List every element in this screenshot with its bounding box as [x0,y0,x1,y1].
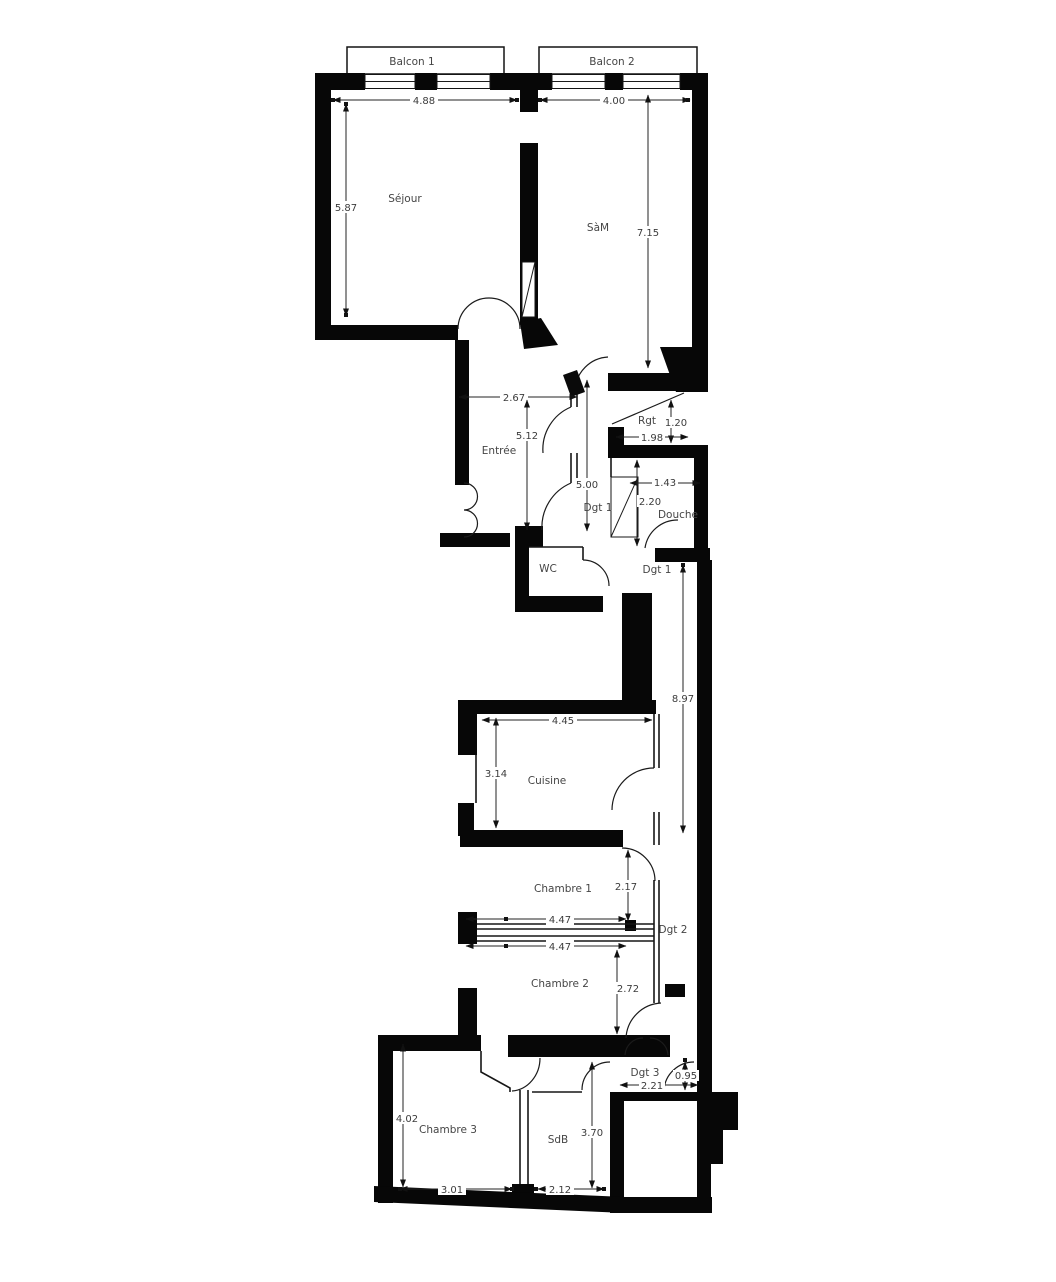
dim-entree-height: 5.12 [513,400,541,530]
fixtures [522,262,638,537]
dim-rgt-width: 1.98 [616,432,688,444]
room-label-dgt1-lower: Dgt 1 [643,564,672,576]
dim-entree-width: 2.67 [459,391,577,404]
room-label-dgt3: Dgt 3 [631,1067,660,1079]
dim-douche-width: 1.43 [630,477,700,489]
dim-sam-height: 7.15 [634,95,662,368]
dim-chambre2-height: 2.72 [614,950,642,1034]
door-entree-lower [542,483,571,530]
room-label-rgt: Rgt [638,415,656,427]
svg-text:5.00: 5.00 [576,480,598,491]
svg-text:3.70: 3.70 [581,1128,603,1139]
window-balcony2-left [552,75,605,89]
svg-text:5.12: 5.12 [516,431,538,442]
dim-cuisine-width: 4.45 [482,714,652,727]
room-label-entree: Entrée [482,445,516,457]
door-sdb [582,1062,610,1090]
dim-chambre3-height: 4.02 [393,1044,421,1187]
door-douche [645,520,678,548]
door-chambre2 [626,1003,661,1038]
room-label-chambre3: Chambre 3 [419,1124,477,1136]
room-label-chambre1: Chambre 1 [534,883,592,895]
svg-text:0.95: 0.95 [675,1071,697,1082]
svg-text:2.21: 2.21 [641,1081,663,1092]
door-wc [583,560,609,586]
svg-text:2.72: 2.72 [617,984,639,995]
dim-balcon2-width: 4.00 [540,94,690,107]
dim-corridor-length: 8.97 [669,565,697,833]
dim-cuisine-height: 3.14 [482,718,510,828]
room-label-balcon2: Balcon 2 [589,56,634,68]
svg-text:2.17: 2.17 [615,882,637,893]
dim-chambre2-width: 4.47 [466,940,626,953]
door-cuisine [612,768,654,810]
dim-sdb-width: 2.12 [538,1183,604,1196]
svg-text:2.12: 2.12 [549,1185,571,1196]
svg-text:1.98: 1.98 [641,433,663,444]
shower-fixture [611,477,638,537]
flue [522,262,535,317]
svg-text:8.97: 8.97 [672,694,694,705]
svg-text:7.15: 7.15 [637,228,659,239]
door-sejour-left-leaf [458,298,489,329]
door-entrance [464,483,477,537]
svg-text:2.67: 2.67 [503,393,525,404]
svg-text:1.20: 1.20 [665,418,687,429]
dim-dgt3-height: 0.95 [673,1062,699,1090]
svg-text:3.14: 3.14 [485,769,507,780]
room-label-cuisine: Cuisine [528,775,566,787]
svg-text:4.02: 4.02 [396,1114,418,1125]
dim-chambre1-height: 2.17 [612,850,640,921]
door-sam-leaf [563,370,585,397]
door-chambre3 [512,1058,540,1091]
dim-sejour-height: 5.87 [332,104,360,316]
door-sejour-right-leaf [489,298,520,329]
dim-balcon1-width: 4.88 [333,94,517,107]
room-label-dgt1-upper: Dgt 1 [584,502,613,514]
svg-text:4.47: 4.47 [549,942,571,953]
floor-plan: 4.88 4.00 5.87 7.15 2.67 5.12 [0,0,1056,1282]
window-balcony1-right [437,75,490,89]
svg-text:2.20: 2.20 [639,497,661,508]
room-label-sdb: SdB [548,1134,569,1146]
svg-text:4.45: 4.45 [552,716,574,727]
svg-text:5.87: 5.87 [335,203,357,214]
window-balcony2-right [623,75,680,89]
room-label-douche: Douche [658,509,698,521]
svg-text:1.43: 1.43 [654,478,676,489]
svg-text:4.47: 4.47 [549,915,571,926]
room-label-sejour: Séjour [388,193,422,205]
dim-sdb-height: 3.70 [578,1062,606,1188]
walls [315,73,738,1213]
room-label-sam: SàM [587,222,609,234]
door-entree-upper [543,407,571,453]
room-label-wc: WC [539,563,557,575]
window-balcony1-left [365,75,415,89]
svg-text:4.00: 4.00 [603,96,625,107]
room-label-balcon1: Balcon 1 [389,56,434,68]
svg-text:3.01: 3.01 [441,1185,463,1196]
room-label-dgt2: Dgt 2 [659,924,688,936]
svg-text:4.88: 4.88 [413,96,435,107]
room-label-chambre2: Chambre 2 [531,978,589,990]
door-chambre1 [622,848,655,881]
